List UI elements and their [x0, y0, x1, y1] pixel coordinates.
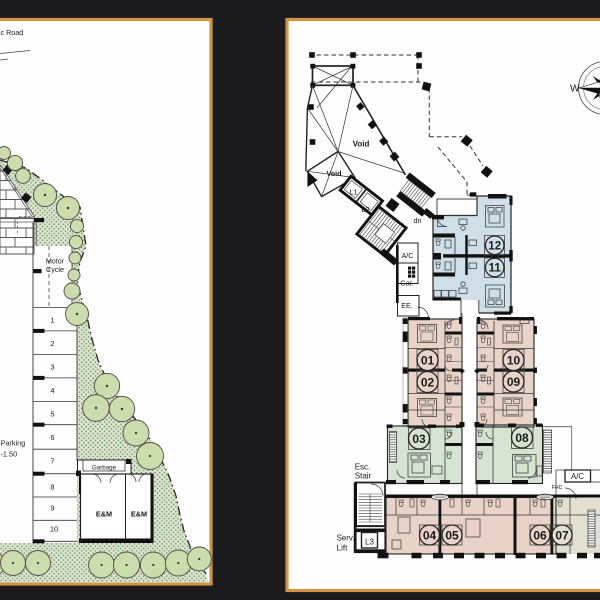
- svg-text:3: 3: [50, 363, 54, 372]
- svg-text:06: 06: [533, 529, 547, 543]
- svg-text:Lift: Lift: [337, 544, 348, 553]
- svg-text:Serv.: Serv.: [336, 534, 354, 543]
- svg-text:dn: dn: [414, 216, 422, 225]
- svg-text:2: 2: [50, 339, 54, 348]
- svg-text:01: 01: [421, 354, 435, 368]
- svg-text:12: 12: [488, 241, 501, 253]
- svg-text:4: 4: [50, 386, 54, 395]
- svg-text:EE.: EE.: [401, 301, 413, 310]
- svg-text:Garbage: Garbage: [92, 465, 117, 472]
- svg-text:c Road: c Road: [1, 28, 24, 37]
- svg-text:1: 1: [50, 316, 54, 325]
- svg-text:8: 8: [50, 483, 54, 492]
- svg-text:6: 6: [50, 433, 54, 442]
- svg-text:09: 09: [507, 375, 521, 389]
- svg-text:Stair: Stair: [355, 472, 372, 481]
- svg-text:FHC: FHC: [552, 485, 563, 491]
- svg-text:E&M: E&M: [131, 510, 147, 519]
- svg-text:L2: L2: [361, 205, 369, 214]
- svg-text:07: 07: [555, 529, 569, 543]
- svg-text:08: 08: [515, 431, 529, 445]
- svg-text:W: W: [570, 84, 580, 95]
- svg-text:A/C: A/C: [571, 472, 584, 481]
- svg-text:A/C: A/C: [402, 251, 414, 260]
- svg-text:Gar.: Gar.: [400, 279, 414, 288]
- svg-text:Void: Void: [326, 169, 341, 178]
- svg-text:9: 9: [50, 504, 54, 513]
- svg-text:L3: L3: [365, 538, 374, 547]
- svg-text:10: 10: [50, 525, 58, 534]
- svg-text:5: 5: [50, 410, 54, 419]
- svg-text:04: 04: [423, 529, 437, 543]
- svg-text:Void: Void: [353, 140, 370, 149]
- svg-text:7: 7: [50, 456, 54, 465]
- svg-text:03: 03: [412, 432, 426, 446]
- svg-text:Cycle: Cycle: [46, 265, 64, 274]
- svg-text:E&M: E&M: [96, 510, 112, 519]
- svg-text:11: 11: [489, 263, 502, 275]
- svg-text:10: 10: [507, 354, 521, 368]
- svg-text:-1.50: -1.50: [1, 450, 18, 459]
- svg-text:05: 05: [445, 529, 459, 543]
- svg-text:L1: L1: [349, 188, 357, 197]
- svg-text:02: 02: [421, 376, 435, 390]
- svg-text:Parking: Parking: [1, 439, 26, 448]
- svg-text:Esc.: Esc.: [355, 463, 371, 472]
